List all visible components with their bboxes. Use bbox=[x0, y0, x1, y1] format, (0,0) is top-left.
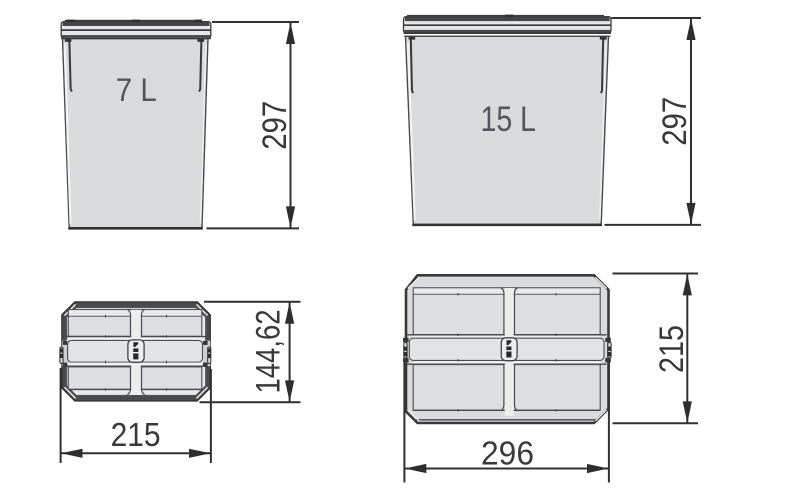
svg-text:296: 296 bbox=[481, 434, 534, 471]
svg-text:7 L: 7 L bbox=[116, 72, 157, 108]
svg-text:297: 297 bbox=[256, 101, 294, 150]
svg-text:297: 297 bbox=[656, 97, 694, 146]
svg-text:144,62: 144,62 bbox=[250, 310, 288, 394]
svg-text:215: 215 bbox=[111, 416, 161, 453]
svg-text:15 L: 15 L bbox=[481, 100, 537, 139]
svg-text:215: 215 bbox=[653, 325, 691, 373]
